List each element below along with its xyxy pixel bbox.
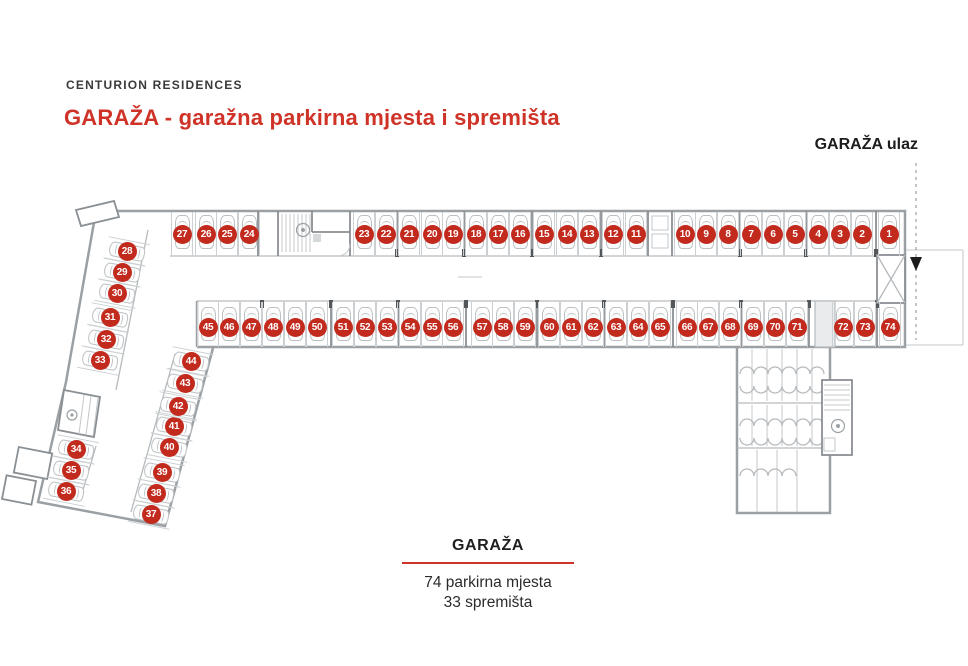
parking-spot-number-badge: 18	[467, 225, 486, 244]
parking-spot-number-badge: 14	[558, 225, 577, 244]
parking-spot-number-badge: 59	[516, 318, 535, 337]
parking-spot-number-badge: 21	[400, 225, 419, 244]
parking-spot-number-badge: 30	[108, 284, 127, 303]
parking-spot-number-badge: 51	[334, 318, 353, 337]
parking-spot-number-badge: 61	[562, 318, 581, 337]
legend-storage-count: 33 spremišta	[320, 593, 656, 613]
parking-spot-number-badge: 1	[880, 225, 899, 244]
parking-spot-number-badge: 6	[764, 225, 783, 244]
parking-spot-number-badge: 48	[264, 318, 283, 337]
parking-spot-number-badge: 68	[721, 318, 740, 337]
parking-spot-number-badge: 17	[489, 225, 508, 244]
parking-spot-number-badge: 62	[584, 318, 603, 337]
parking-spot-number-badge: 33	[91, 351, 110, 370]
parking-spot-number-badge: 39	[153, 463, 172, 482]
brand-text: CENTURION RESIDENCES	[66, 78, 243, 92]
parking-spot-number-badge: 28	[118, 242, 137, 261]
parking-spot-number-badge: 65	[651, 318, 670, 337]
parking-spot-number-badge: 64	[629, 318, 648, 337]
parking-spot-number-badge: 31	[101, 308, 120, 327]
parking-spot-number-badge: 19	[444, 225, 463, 244]
parking-spot-number-badge: 10	[676, 225, 695, 244]
parking-spot-number-badge: 43	[176, 374, 195, 393]
entrance-label: GARAŽA ulaz	[815, 136, 918, 154]
legend-parking-count: 74 parkirna mjesta	[320, 573, 656, 593]
parking-spot-number-badge: 60	[540, 318, 559, 337]
parking-spot-number-badge: 34	[67, 440, 86, 459]
legend-title: GARAŽA	[320, 537, 656, 555]
parking-spot-number-badge: 72	[834, 318, 853, 337]
parking-spot-number-badge: 70	[766, 318, 785, 337]
parking-spot-number-badge: 56	[444, 318, 463, 337]
parking-spot-number-badge: 13	[580, 225, 599, 244]
parking-spot-number-badge: 45	[199, 318, 218, 337]
parking-spot-number-badge: 9	[697, 225, 716, 244]
parking-spot-number-badge: 32	[97, 330, 116, 349]
parking-spot-number-badge: 44	[182, 352, 201, 371]
parking-spot-number-badge: 52	[356, 318, 375, 337]
parking-spot-number-badge: 53	[378, 318, 397, 337]
page-title: GARAŽA - garažna parkirna mjesta i sprem…	[64, 105, 560, 131]
parking-spot-number-badge: 7	[742, 225, 761, 244]
parking-spot-number-badge: 27	[173, 225, 192, 244]
parking-spot-number-badge: 25	[218, 225, 237, 244]
parking-spot-number-badge: 11	[627, 225, 646, 244]
parking-spot-number-badge: 5	[786, 225, 805, 244]
parking-spot-number-badge: 50	[308, 318, 327, 337]
parking-spot-number-badge: 67	[699, 318, 718, 337]
parking-spot-number-badge: 63	[607, 318, 626, 337]
parking-spot-number-badge: 8	[719, 225, 738, 244]
parking-spot-number-badge: 29	[113, 263, 132, 282]
legend-underline	[402, 562, 574, 564]
parking-spot-number-badge: 47	[242, 318, 261, 337]
parking-spot-number-badge: 46	[220, 318, 239, 337]
parking-spot-number-badge: 69	[744, 318, 763, 337]
parking-spot-number-badge: 40	[160, 438, 179, 457]
parking-spot-number-badge: 49	[286, 318, 305, 337]
garage-plan-page: 1234567891011121314151617181920212223242…	[0, 0, 968, 666]
parking-spot-number-badge: 2	[853, 225, 872, 244]
parking-spot-number-badge: 57	[473, 318, 492, 337]
parking-spot-number-badge: 15	[535, 225, 554, 244]
parking-spot-number-badge: 58	[494, 318, 513, 337]
entrance-arrow-icon	[910, 257, 922, 271]
parking-spot-number-badge: 20	[423, 225, 442, 244]
parking-spot-number-badge: 42	[169, 397, 188, 416]
parking-spot-number-badge: 12	[604, 225, 623, 244]
parking-spot-number-badge: 4	[809, 225, 828, 244]
parking-spot-number-badge: 66	[678, 318, 697, 337]
plan-legend: GARAŽA 74 parkirna mjesta 33 spremišta	[320, 537, 656, 613]
parking-spot-number-badge: 26	[197, 225, 216, 244]
parking-spot-number-badge: 24	[240, 225, 259, 244]
parking-spot-number-badge: 35	[62, 461, 81, 480]
parking-spot-number-badge: 23	[355, 225, 374, 244]
parking-spot-number-badge: 73	[856, 318, 875, 337]
parking-spot-number-badge: 55	[423, 318, 442, 337]
parking-spot-number-badge: 74	[881, 318, 900, 337]
parking-spot-number-badge: 3	[831, 225, 850, 244]
parking-spot-number-badge: 36	[57, 482, 76, 501]
parking-spot-number-badge: 41	[165, 417, 184, 436]
parking-spot-number-badge: 71	[788, 318, 807, 337]
parking-spot-number-badge: 22	[377, 225, 396, 244]
parking-spot-number-badge: 37	[142, 505, 161, 524]
parking-spot-number-badge: 54	[401, 318, 420, 337]
parking-spot-number-badge: 38	[147, 484, 166, 503]
parking-spot-number-badge: 16	[511, 225, 530, 244]
